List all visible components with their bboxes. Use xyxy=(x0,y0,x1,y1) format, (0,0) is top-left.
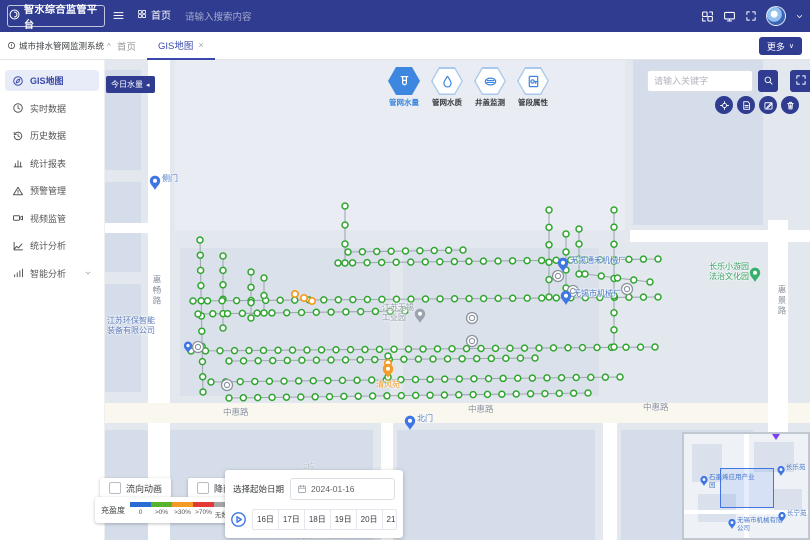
pipe-node[interactable] xyxy=(626,294,632,300)
pipe-node-alert[interactable] xyxy=(292,291,298,297)
pipe-node[interactable] xyxy=(220,282,226,288)
pipe-node[interactable] xyxy=(281,378,287,384)
tab-首页[interactable]: 首页 xyxy=(106,32,147,60)
pipe-node[interactable] xyxy=(377,346,383,352)
pipe-node[interactable] xyxy=(205,298,211,304)
pipe-node[interactable] xyxy=(328,357,334,363)
pipe-node[interactable] xyxy=(270,358,276,364)
pipe-node[interactable] xyxy=(449,346,455,352)
pipe-node[interactable] xyxy=(296,378,302,384)
pipe-node[interactable] xyxy=(248,284,254,290)
fullscreen-icon[interactable] xyxy=(745,10,757,22)
chevron-down-icon[interactable] xyxy=(795,12,804,21)
pipe-node[interactable] xyxy=(384,393,390,399)
pipe-node[interactable] xyxy=(219,298,225,304)
layer-tool-manhole[interactable]: 井盖监测 xyxy=(472,67,508,108)
pipe-node[interactable] xyxy=(536,345,542,351)
day-chip-16日[interactable]: 16日 xyxy=(253,510,278,529)
pipe-node[interactable] xyxy=(237,379,243,385)
pipe-node[interactable] xyxy=(559,375,565,381)
pipe-node[interactable] xyxy=(321,297,327,303)
pipe-node[interactable] xyxy=(350,297,356,303)
pipe-node[interactable] xyxy=(197,237,203,243)
pipe-node[interactable] xyxy=(495,258,501,264)
device-marker[interactable] xyxy=(224,382,229,387)
sidebar-item-clock[interactable]: 实时数据 xyxy=(5,98,99,119)
pipe-node[interactable] xyxy=(499,391,505,397)
pipe-node[interactable] xyxy=(423,296,429,302)
pipe-node[interactable] xyxy=(532,355,538,361)
pipe-node[interactable] xyxy=(524,295,530,301)
hamburger-menu-icon[interactable] xyxy=(112,9,125,22)
pipe-node[interactable] xyxy=(445,356,451,362)
pipe-node[interactable] xyxy=(354,377,360,383)
pipe-node[interactable] xyxy=(298,394,304,400)
pipe-node[interactable] xyxy=(198,283,204,289)
pipe-node[interactable] xyxy=(232,348,238,354)
pipe-node[interactable] xyxy=(551,345,557,351)
pipe-node[interactable] xyxy=(210,311,216,317)
pipe-node[interactable] xyxy=(470,392,476,398)
pipe-node[interactable] xyxy=(602,374,608,380)
pipe-node[interactable] xyxy=(510,258,516,264)
pipe-node[interactable] xyxy=(544,375,550,381)
pipe-node[interactable] xyxy=(510,295,516,301)
pipe-node[interactable] xyxy=(342,241,348,247)
pipe-node[interactable] xyxy=(248,269,254,275)
pipe-node[interactable] xyxy=(226,358,232,364)
pipe-node[interactable] xyxy=(290,347,296,353)
pipe-node[interactable] xyxy=(225,311,231,317)
pipe-node[interactable] xyxy=(269,394,275,400)
pipe-node[interactable] xyxy=(398,377,404,383)
pipe-node[interactable] xyxy=(240,395,246,401)
pipe-node[interactable] xyxy=(269,310,275,316)
monitor-icon[interactable] xyxy=(723,10,736,23)
pipe-node[interactable] xyxy=(345,249,351,255)
pipe-node[interactable] xyxy=(553,295,559,301)
pipe-node[interactable] xyxy=(284,310,290,316)
pipe-node[interactable] xyxy=(631,277,637,283)
pipe-node[interactable] xyxy=(456,392,462,398)
pipe-node[interactable] xyxy=(313,357,319,363)
sidebar-item-history[interactable]: 历史数据 xyxy=(5,125,99,146)
manhole-icon xyxy=(476,69,505,94)
pipe-node[interactable] xyxy=(507,345,513,351)
day-chip-21日[interactable]: 21日 xyxy=(382,510,397,529)
pipe-node[interactable] xyxy=(342,222,348,228)
pipe-node[interactable] xyxy=(568,257,574,263)
pipe-node[interactable] xyxy=(451,259,457,265)
pipe-node[interactable] xyxy=(437,296,443,302)
pipe-node[interactable] xyxy=(208,379,214,385)
pipe-node[interactable] xyxy=(385,353,391,359)
layer-tool-water-meter[interactable]: 管网水量 xyxy=(386,67,422,108)
pipe-node[interactable] xyxy=(283,394,289,400)
pipe-node[interactable] xyxy=(652,344,658,350)
pipe-node[interactable] xyxy=(261,275,267,281)
pipe-node[interactable] xyxy=(576,256,582,262)
pipe-node[interactable] xyxy=(573,375,579,381)
pipe-node[interactable] xyxy=(437,259,443,265)
pipe-node[interactable] xyxy=(582,257,588,263)
pipe-node[interactable] xyxy=(529,375,535,381)
edit-button[interactable] xyxy=(759,96,777,114)
pipe-node[interactable] xyxy=(580,345,586,351)
pipe-node[interactable] xyxy=(255,395,261,401)
pipe-node[interactable] xyxy=(517,355,523,361)
day-chip-17日[interactable]: 17日 xyxy=(278,510,304,529)
pipe-node[interactable] xyxy=(374,249,380,255)
pipe-node[interactable] xyxy=(275,347,281,353)
pipe-node[interactable] xyxy=(325,378,331,384)
pipe-node[interactable] xyxy=(431,248,437,254)
pipe-node[interactable] xyxy=(341,393,347,399)
pipe-node[interactable] xyxy=(310,378,316,384)
pipe-node-alert[interactable] xyxy=(309,298,315,304)
pipe-node[interactable] xyxy=(486,376,492,382)
pipe-node[interactable] xyxy=(539,257,545,263)
pipe-node[interactable] xyxy=(335,297,341,303)
pipe-node[interactable] xyxy=(198,267,204,273)
pipe-node[interactable] xyxy=(370,393,376,399)
pipe-node[interactable] xyxy=(594,345,600,351)
device-marker[interactable] xyxy=(570,288,575,293)
pipe-node[interactable] xyxy=(542,391,548,397)
pipe-node[interactable] xyxy=(413,377,419,383)
pipe-node[interactable] xyxy=(387,308,393,314)
sidebar-menu: GIS地图实时数据历史数据统计报表预警管理视频监管统计分析智能分析 xyxy=(0,70,104,284)
sidebar-item-alert[interactable]: 预警管理 xyxy=(5,180,99,201)
pipe-node[interactable] xyxy=(640,256,646,262)
pipe-node[interactable] xyxy=(611,207,617,213)
pipe-node[interactable] xyxy=(588,374,594,380)
pipe-node[interactable] xyxy=(466,258,472,264)
open-tabs: 首页GIS地图× xyxy=(106,32,215,60)
sidebar-item-bar-chart[interactable]: 统计报表 xyxy=(5,153,99,174)
pipe-node[interactable] xyxy=(343,309,349,315)
keyword-input[interactable] xyxy=(647,70,753,92)
screen-switch-icon[interactable] xyxy=(701,10,714,23)
delete-button[interactable] xyxy=(781,96,799,114)
layer-tool-pipe[interactable]: 管段属性 xyxy=(515,67,551,108)
pipe-node[interactable] xyxy=(571,390,577,396)
map-pin[interactable] xyxy=(561,291,571,305)
pipe-node-alert[interactable] xyxy=(301,295,307,301)
logo-swirl-icon xyxy=(8,8,21,24)
pipe-node[interactable] xyxy=(441,392,447,398)
pipe-node[interactable] xyxy=(372,357,378,363)
pipe-node[interactable] xyxy=(546,277,552,283)
pipe-node[interactable] xyxy=(342,260,348,266)
pipe-node[interactable] xyxy=(415,356,421,362)
device-marker[interactable] xyxy=(195,344,200,349)
map-pin[interactable] xyxy=(150,176,160,190)
pipe-node[interactable] xyxy=(388,248,394,254)
pipe-node[interactable] xyxy=(252,378,258,384)
pipe-node[interactable] xyxy=(582,295,588,301)
pipe-node[interactable] xyxy=(199,359,205,365)
pipe-node[interactable] xyxy=(402,308,408,314)
breadcrumb-home[interactable]: 首页 xyxy=(137,9,171,24)
sidebar-system-title[interactable]: 城市排水管网监测系统 ^ xyxy=(7,40,107,52)
locate-button[interactable] xyxy=(715,96,733,114)
pipe-node[interactable] xyxy=(576,271,582,277)
pipe-node[interactable] xyxy=(335,260,341,266)
pipe-node[interactable] xyxy=(355,393,361,399)
pipe-node[interactable] xyxy=(379,259,385,265)
pipe-node[interactable] xyxy=(515,375,521,381)
minimap-poi-label: 长宁苑 xyxy=(787,510,810,518)
device-marker[interactable] xyxy=(555,273,560,278)
pipe-node[interactable] xyxy=(556,390,562,396)
pipe-node[interactable] xyxy=(466,296,472,302)
pipe-node[interactable] xyxy=(524,258,530,264)
pipe-node[interactable] xyxy=(369,377,375,383)
pipe-node[interactable] xyxy=(248,300,254,306)
pipe-node[interactable] xyxy=(266,378,272,384)
pipe-node[interactable] xyxy=(391,346,397,352)
pipe-node[interactable] xyxy=(357,357,363,363)
map-pin[interactable] xyxy=(750,268,760,282)
pipe-node[interactable] xyxy=(513,391,519,397)
pipe-node[interactable] xyxy=(456,376,462,382)
pipe-node[interactable] xyxy=(333,347,339,353)
pipe-node[interactable] xyxy=(261,293,267,299)
pipe-node[interactable] xyxy=(464,346,470,352)
pipe-node[interactable] xyxy=(611,344,617,350)
pipe-node[interactable] xyxy=(611,327,617,333)
legend-item: >30% xyxy=(172,502,193,519)
pipe-node[interactable] xyxy=(403,248,409,254)
pipe-node[interactable] xyxy=(474,356,480,362)
user-avatar[interactable] xyxy=(766,6,786,26)
pipe-node[interactable] xyxy=(234,298,240,304)
pipe-node[interactable] xyxy=(312,394,318,400)
device-marker[interactable] xyxy=(469,338,474,343)
minimap-pin[interactable] xyxy=(728,519,735,529)
pipe-node[interactable] xyxy=(319,347,325,353)
layer-tool-water-drop[interactable]: 管网水质 xyxy=(429,67,465,108)
pipe-node[interactable] xyxy=(261,347,267,353)
layer-tool-group: 管网水量管网水质井盖监测管段属性 xyxy=(386,67,551,108)
sidebar-item-compass[interactable]: GIS地图 xyxy=(5,70,99,91)
pipe-node[interactable] xyxy=(417,248,423,254)
pipe-node[interactable] xyxy=(598,273,604,279)
start-date-input[interactable]: 2024-01-16 xyxy=(290,478,395,500)
pipe-node[interactable] xyxy=(200,374,206,380)
pipe-node[interactable] xyxy=(359,249,365,255)
global-search-input[interactable] xyxy=(183,6,317,28)
minimap-pin[interactable] xyxy=(700,476,707,486)
pipe-node[interactable] xyxy=(277,297,283,303)
pipe-node[interactable] xyxy=(217,348,223,354)
pipe-node[interactable] xyxy=(364,260,370,266)
map-pin[interactable] xyxy=(383,364,393,378)
pipe-node[interactable] xyxy=(617,374,623,380)
pipe-node[interactable] xyxy=(655,294,661,300)
pipe-node[interactable] xyxy=(430,356,436,362)
pipe-node[interactable] xyxy=(313,309,319,315)
pipe-node[interactable] xyxy=(348,347,354,353)
pipe-node[interactable] xyxy=(522,345,528,351)
toggle-流向动画[interactable]: 流向动画 xyxy=(100,478,171,498)
edit-icon xyxy=(763,100,774,111)
day-chip-20日[interactable]: 20日 xyxy=(356,510,382,529)
pipe-node[interactable] xyxy=(500,375,506,381)
pipe-node[interactable] xyxy=(255,358,261,364)
pipe-node[interactable] xyxy=(576,226,582,232)
pipe-node[interactable] xyxy=(427,376,433,382)
pipe-node[interactable] xyxy=(364,297,370,303)
pipe-node[interactable] xyxy=(226,395,232,401)
tab-GIS地图[interactable]: GIS地图× xyxy=(147,32,215,60)
pipe-node[interactable] xyxy=(585,390,591,396)
pipe-node[interactable] xyxy=(539,295,545,301)
pipe-node[interactable] xyxy=(393,296,399,302)
pipe-node[interactable] xyxy=(582,271,588,277)
tab-close-icon[interactable]: × xyxy=(198,41,203,50)
pipe-node[interactable] xyxy=(503,355,509,361)
pipe-node[interactable] xyxy=(220,253,226,259)
map-fullscreen-button[interactable] xyxy=(790,70,810,92)
pipe-node[interactable] xyxy=(398,393,404,399)
map-search-group xyxy=(647,70,810,92)
day-chip-18日[interactable]: 18日 xyxy=(304,510,330,529)
pipe-node[interactable] xyxy=(576,241,582,247)
pipe-node[interactable] xyxy=(611,258,617,264)
pipe-node[interactable] xyxy=(488,355,494,361)
pipe-node[interactable] xyxy=(254,310,260,316)
pipe-node[interactable] xyxy=(546,207,552,213)
pipe-node[interactable] xyxy=(413,392,419,398)
pipe-node[interactable] xyxy=(220,325,226,331)
pipe-node[interactable] xyxy=(626,256,632,262)
pipe-node[interactable] xyxy=(611,310,617,316)
pipe-node[interactable] xyxy=(241,358,247,364)
pipe-node[interactable] xyxy=(640,294,646,300)
pipe-node[interactable] xyxy=(546,224,552,230)
pipe-node[interactable] xyxy=(597,295,603,301)
pipe-node[interactable] xyxy=(372,308,378,314)
more-button[interactable]: 更多 ∨ xyxy=(759,37,802,55)
checkbox[interactable] xyxy=(197,482,209,494)
pipe-node[interactable] xyxy=(442,376,448,382)
pipe-node[interactable] xyxy=(199,328,205,334)
pipe-node[interactable] xyxy=(239,310,245,316)
pipe-node[interactable] xyxy=(362,347,368,353)
pipe-node[interactable] xyxy=(343,357,349,363)
pipe-node[interactable] xyxy=(197,252,203,258)
minimap-viewport[interactable] xyxy=(720,468,774,508)
pipe-node[interactable] xyxy=(427,392,433,398)
pipe-node[interactable] xyxy=(495,295,501,301)
pipe-node[interactable] xyxy=(480,258,486,264)
pipe-node[interactable] xyxy=(328,309,334,315)
pipe-node[interactable] xyxy=(452,296,458,302)
pipe-node[interactable] xyxy=(597,257,603,263)
pipe-node[interactable] xyxy=(611,293,617,299)
pipe-node[interactable] xyxy=(435,346,441,352)
pipe-node[interactable] xyxy=(623,344,629,350)
today-water-button[interactable]: 今日水量 ◂ xyxy=(106,76,155,93)
sidebar-item-trend[interactable]: 统计分析 xyxy=(5,235,99,256)
pipe-node[interactable] xyxy=(459,356,465,362)
pipe-node[interactable] xyxy=(299,310,305,316)
pipe-node[interactable] xyxy=(528,391,534,397)
pipe-node[interactable] xyxy=(546,242,552,248)
pipe-node[interactable] xyxy=(195,311,201,317)
pipe-node[interactable] xyxy=(484,391,490,397)
pipe-node[interactable] xyxy=(420,346,426,352)
pipe-node[interactable] xyxy=(261,310,267,316)
pipe-node[interactable] xyxy=(638,344,644,350)
report-button[interactable] xyxy=(737,96,755,114)
pipe-node[interactable] xyxy=(647,279,653,285)
pipe-node[interactable] xyxy=(446,247,452,253)
pipe-node[interactable] xyxy=(422,259,428,265)
pipe-node[interactable] xyxy=(248,315,254,321)
pipe-node[interactable] xyxy=(358,309,364,315)
pipe-node[interactable] xyxy=(615,275,621,281)
pipe-node[interactable] xyxy=(220,267,226,273)
pipe-node[interactable] xyxy=(493,345,499,351)
map-pin[interactable] xyxy=(415,309,425,323)
pipe-node[interactable] xyxy=(200,389,206,395)
pipe-node[interactable] xyxy=(393,259,399,265)
pipe-node[interactable] xyxy=(379,296,385,302)
pipe-node[interactable] xyxy=(655,256,661,262)
pipe-node[interactable] xyxy=(481,296,487,302)
pipe-node[interactable] xyxy=(546,294,552,300)
overview-minimap[interactable]: 石墨烯应用产业园长乐苑长宁苑无锡市机械有限公司 xyxy=(682,432,810,540)
pipe-node[interactable] xyxy=(284,357,290,363)
day-chip-19日[interactable]: 19日 xyxy=(330,510,356,529)
map-pin[interactable] xyxy=(405,416,415,430)
pipe-node[interactable] xyxy=(408,296,414,302)
pipe-node[interactable] xyxy=(350,260,356,266)
pipe-node[interactable] xyxy=(546,259,552,265)
pipe-node[interactable] xyxy=(471,376,477,382)
sidebar-item-video[interactable]: 视频监管 xyxy=(5,208,99,229)
sidebar-item-signal[interactable]: 智能分析 xyxy=(5,263,99,284)
pipe-node[interactable] xyxy=(339,377,345,383)
pipe-node[interactable] xyxy=(401,356,407,362)
pipe-node[interactable] xyxy=(198,298,204,304)
minimap-pin[interactable] xyxy=(777,466,784,476)
pipe-node[interactable] xyxy=(246,348,252,354)
pipe-node[interactable] xyxy=(460,247,466,253)
device-marker[interactable] xyxy=(624,286,629,291)
pipe-node[interactable] xyxy=(478,346,484,352)
search-button[interactable] xyxy=(758,70,778,92)
pipe-node[interactable] xyxy=(406,346,412,352)
checkbox[interactable] xyxy=(109,482,121,494)
pipe-node[interactable] xyxy=(563,249,569,255)
play-button[interactable] xyxy=(230,511,247,529)
pipe-node[interactable] xyxy=(304,347,310,353)
pipe-node[interactable] xyxy=(563,231,569,237)
pipe-node[interactable] xyxy=(611,241,617,247)
pipe-node[interactable] xyxy=(327,394,333,400)
pipe-node[interactable] xyxy=(299,357,305,363)
pipe-node[interactable] xyxy=(342,203,348,209)
pipe-node[interactable] xyxy=(408,259,414,265)
device-marker[interactable] xyxy=(469,315,474,320)
pipe-node[interactable] xyxy=(611,224,617,230)
pipe-node[interactable] xyxy=(190,298,196,304)
pipe-node[interactable] xyxy=(565,345,571,351)
